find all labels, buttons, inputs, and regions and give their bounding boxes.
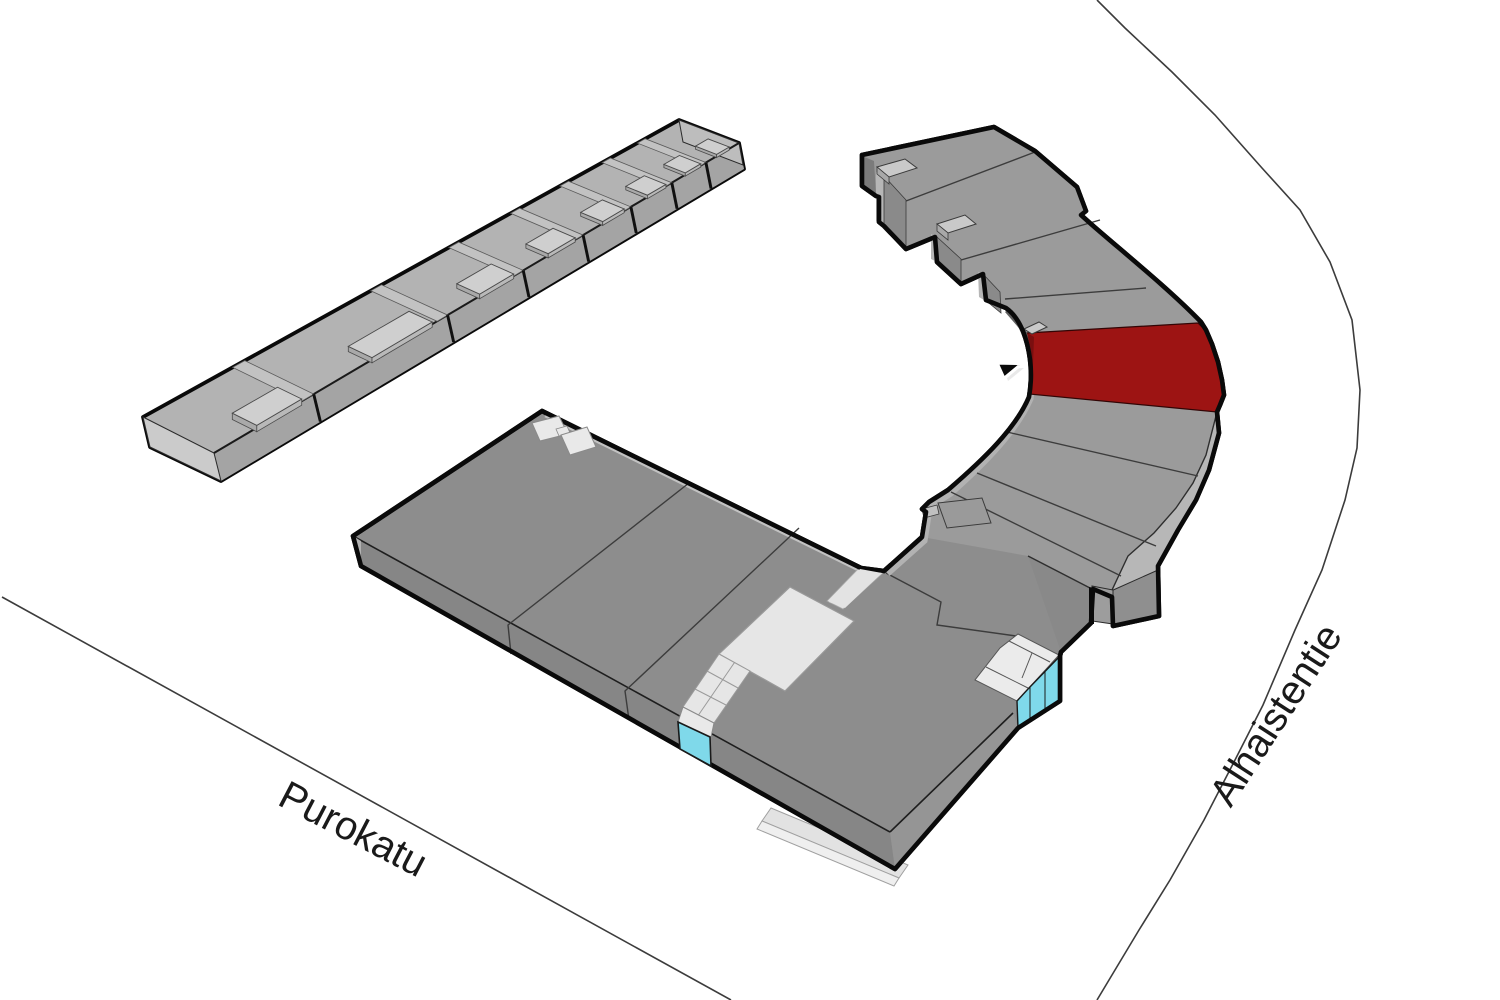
svg-text:Purokatu: Purokatu bbox=[272, 773, 434, 886]
svg-text:Alhaistentie: Alhaistentie bbox=[1201, 616, 1351, 813]
